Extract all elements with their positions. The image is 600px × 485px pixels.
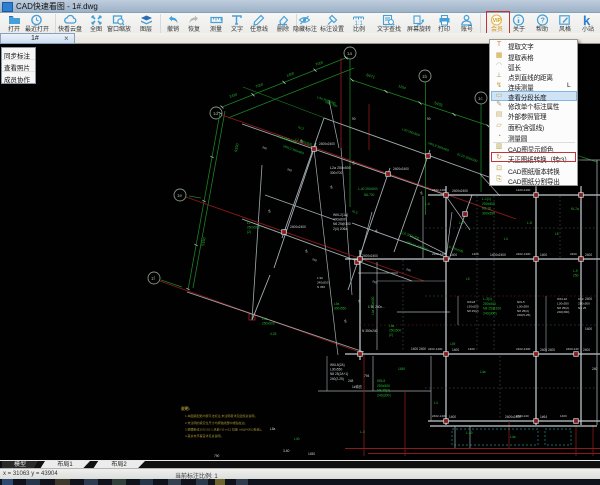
svg-text:N 350: N 350	[317, 285, 325, 289]
svg-text:N6 25@100: N6 25@100	[333, 222, 351, 226]
svg-text:240(300): 240(300)	[557, 310, 569, 314]
svg-text:KL9: KL9	[578, 297, 584, 301]
svg-text:2400x2400: 2400x2400	[393, 167, 409, 171]
svg-text:1 90: 1 90	[317, 276, 323, 280]
svg-text:WKL5(2A): WKL5(2A)	[330, 363, 345, 367]
svg-text:WKL8: WKL8	[467, 300, 476, 304]
svg-text:2400: 2400	[583, 348, 590, 352]
svg-text:2400: 2400	[585, 297, 592, 301]
svg-text:L9a: L9a	[334, 302, 340, 306]
svg-text:N8 25(2): N8 25(2)	[377, 389, 390, 393]
svg-text:240: 240	[592, 367, 598, 371]
svg-text:N2 16: N2 16	[482, 207, 491, 211]
svg-text:240(300): 240(300)	[483, 311, 497, 315]
svg-text:250: 250	[573, 274, 579, 278]
svg-text:2402-2400: 2402-2400	[516, 347, 531, 351]
svg-text:2400-240: 2400-240	[516, 414, 529, 418]
svg-text:250x500: 250x500	[482, 202, 495, 206]
svg-text:400x800: 400x800	[333, 218, 346, 222]
svg-text:L49: L49	[450, 342, 456, 346]
svg-text:250x500: 250x500	[262, 322, 275, 326]
svg-text:1400: 1400	[468, 347, 475, 351]
svg-text:L2a 250x500: L2a 250x500	[330, 166, 351, 170]
svg-text:N8 25(2): N8 25(2)	[467, 309, 479, 313]
svg-text:KL7a: KL7a	[571, 207, 579, 211]
svg-text:L-3(1): L-3(1)	[483, 297, 492, 301]
svg-text:NKL5: NKL5	[517, 300, 525, 304]
svg-text:250x500: 250x500	[377, 384, 390, 388]
svg-text:250x500: 250x500	[247, 226, 260, 230]
svg-text:L5a: L5a	[389, 324, 395, 328]
svg-text:1400: 1400	[450, 253, 457, 257]
svg-text:4.其余未尽事宜详见总说明。: 4.其余未尽事宜详见总说明。	[185, 433, 224, 438]
svg-text:L4a 250x500: L4a 250x500	[371, 296, 375, 315]
svg-text:L-40 250x500: L-40 250x500	[358, 187, 378, 191]
svg-text:2402-1400: 2402-1400	[516, 252, 531, 256]
svg-text:300x700: 300x700	[330, 171, 342, 175]
svg-text:L30x550: L30x550	[467, 304, 479, 308]
svg-text:300x550: 300x550	[482, 211, 495, 215]
svg-text:说明:: 说明:	[181, 406, 190, 411]
svg-text:3-60: 3-60	[283, 449, 290, 453]
svg-text:L5a: L5a	[270, 427, 276, 431]
svg-text:2402-1400: 2402-1400	[432, 188, 447, 192]
svg-text:L30x550: L30x550	[517, 304, 529, 308]
svg-text:L-8: L-8	[527, 221, 532, 225]
svg-text:L30x550: L30x550	[557, 301, 569, 305]
svg-text:250x500: 250x500	[483, 302, 496, 306]
svg-text:N6-700: N6-700	[364, 193, 375, 197]
svg-text:1450: 1450	[398, 367, 405, 371]
svg-text:2400x2400: 2400x2400	[290, 225, 306, 229]
svg-text:L-2: L-2	[459, 221, 464, 225]
svg-text:250x500: 250x500	[389, 329, 401, 333]
svg-text:L-40: L-40	[466, 431, 473, 435]
svg-text:1400: 1400	[449, 415, 456, 419]
svg-text:WKL10: WKL10	[557, 297, 567, 301]
svg-text:300x550: 300x550	[334, 307, 346, 311]
svg-text:WKL2(1A): WKL2(1A)	[333, 213, 348, 217]
svg-text:N8 25: N8 25	[578, 306, 587, 310]
svg-text:1#64: 1#64	[540, 415, 547, 419]
svg-text:N8 25@200: N8 25@200	[483, 307, 501, 311]
svg-text:2400x2400: 2400x2400	[362, 254, 378, 258]
svg-text:L4a: L4a	[262, 317, 268, 321]
svg-text:2400x2400: 2400x2400	[452, 189, 468, 193]
svg-text:1a: 1a	[347, 51, 353, 56]
svg-text:1a: 1a	[344, 227, 348, 231]
svg-text:1d: 1d	[213, 111, 219, 116]
svg-text:90: 90	[352, 117, 356, 121]
svg-text:L2: L2	[247, 221, 251, 225]
svg-text:1400: 1400	[585, 327, 592, 331]
svg-text:90: 90	[427, 117, 431, 121]
svg-text:N8 25(2A+1): N8 25(2A+1)	[330, 372, 348, 376]
svg-text:1b: 1b	[422, 74, 428, 79]
svg-text:248: 248	[348, 379, 354, 383]
svg-text:1400: 1400	[560, 414, 567, 418]
svg-text:2400 2400: 2400 2400	[540, 348, 555, 352]
svg-text:2.未注明的梁定位尺寸均按轴线居中或贴柱边。: 2.未注明的梁定位尺寸均按轴线居中或贴柱边。	[185, 420, 248, 425]
svg-text:2400: 2400	[570, 252, 577, 256]
svg-text:250x500: 250x500	[578, 301, 590, 305]
svg-text:1.本图梁配筋均按平法标注,未注明者详见结施总说明。: 1.本图梁配筋均按平法标注,未注明者详见结施总说明。	[185, 413, 257, 418]
svg-text:794: 794	[364, 374, 370, 378]
svg-text:2400-240: 2400-240	[566, 347, 579, 351]
svg-text:2402-1400: 2402-1400	[432, 414, 447, 418]
svg-text:L5: L5	[466, 277, 470, 281]
svg-text:1400: 1400	[540, 253, 547, 257]
svg-text:2400: 2400	[585, 253, 592, 257]
svg-text:1#填充: 1#填充	[352, 384, 363, 389]
svg-text:(2): (2)	[247, 230, 251, 234]
svg-text:1400-2400: 1400-2400	[516, 188, 531, 192]
svg-text:790: 790	[214, 454, 220, 458]
svg-text:1c: 1c	[478, 96, 484, 101]
svg-text:240(5-25): 240(5-25)	[517, 313, 530, 317]
svg-text:L-1(1): L-1(1)	[482, 197, 491, 201]
svg-text:L-4: L-4	[360, 430, 365, 434]
svg-text:L4: L4	[504, 237, 508, 241]
svg-text:3.梁腰筋详16G101-1,纵筋 N2-m12 拉筋 m6: 3.梁腰筋详16G101-1,纵筋 N2-m12 拉筋 m6@400(2肢箍)。	[185, 427, 264, 432]
svg-text:240(2-25): 240(2-25)	[330, 377, 344, 381]
svg-text:L4a: L4a	[510, 435, 516, 439]
svg-text:1400: 1400	[472, 252, 479, 256]
svg-text:1e: 1e	[177, 193, 183, 198]
svg-text:L30x550: L30x550	[330, 368, 342, 372]
svg-text:4-25: 4-25	[270, 332, 277, 336]
svg-text:L8: L8	[555, 232, 559, 236]
svg-text:(2): (2)	[389, 333, 393, 337]
svg-text:N8 25(2): N8 25(2)	[557, 306, 569, 310]
svg-text:L40: L40	[294, 437, 300, 441]
svg-text:L-9: L-9	[573, 269, 578, 273]
svg-text:2402-1400: 2402-1400	[432, 252, 447, 256]
svg-text:240(300): 240(300)	[377, 393, 391, 397]
svg-text:2402-1400: 2402-1400	[428, 347, 443, 351]
svg-text:L-6: L-6	[425, 202, 430, 206]
svg-text:KBL5: KBL5	[377, 379, 385, 383]
svg-text:1400 2400: 1400 2400	[411, 347, 426, 351]
svg-text:N 350x240: N 350x240	[362, 329, 378, 333]
svg-text:1450: 1450	[308, 452, 315, 456]
svg-text:L4: L4	[434, 401, 438, 405]
svg-text:2400x2400: 2400x2400	[319, 142, 335, 146]
svg-text:N8 25(2): N8 25(2)	[517, 309, 529, 313]
svg-text:1400x2400: 1400x2400	[490, 253, 506, 257]
svg-text:1400: 1400	[452, 348, 459, 352]
svg-text:L4a: L4a	[480, 370, 486, 374]
svg-text:240x550: 240x550	[317, 280, 329, 284]
